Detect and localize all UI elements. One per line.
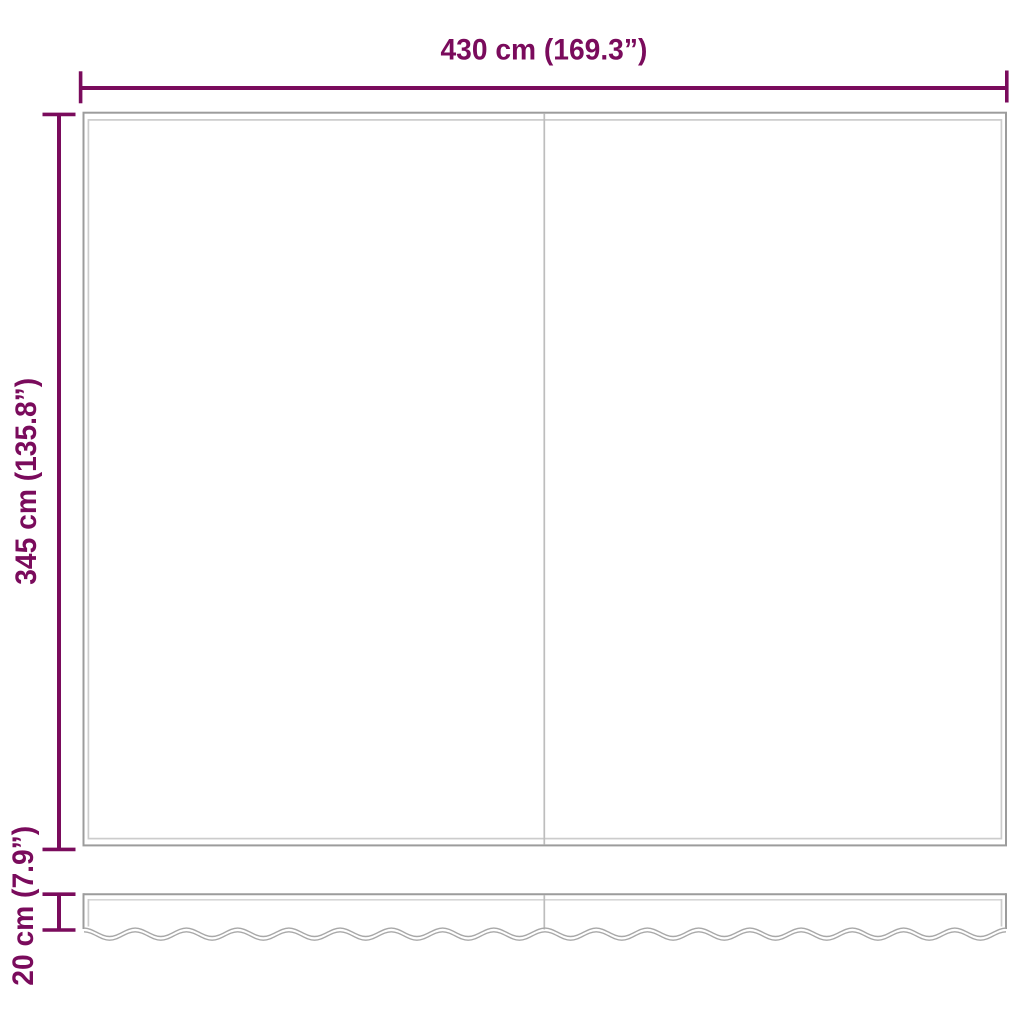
svg-text:20 cm (7.9”): 20 cm (7.9”) — [7, 826, 40, 986]
svg-text:430 cm (169.3”): 430 cm (169.3”) — [440, 34, 647, 67]
svg-text:345 cm (135.8”): 345 cm (135.8”) — [10, 378, 43, 585]
